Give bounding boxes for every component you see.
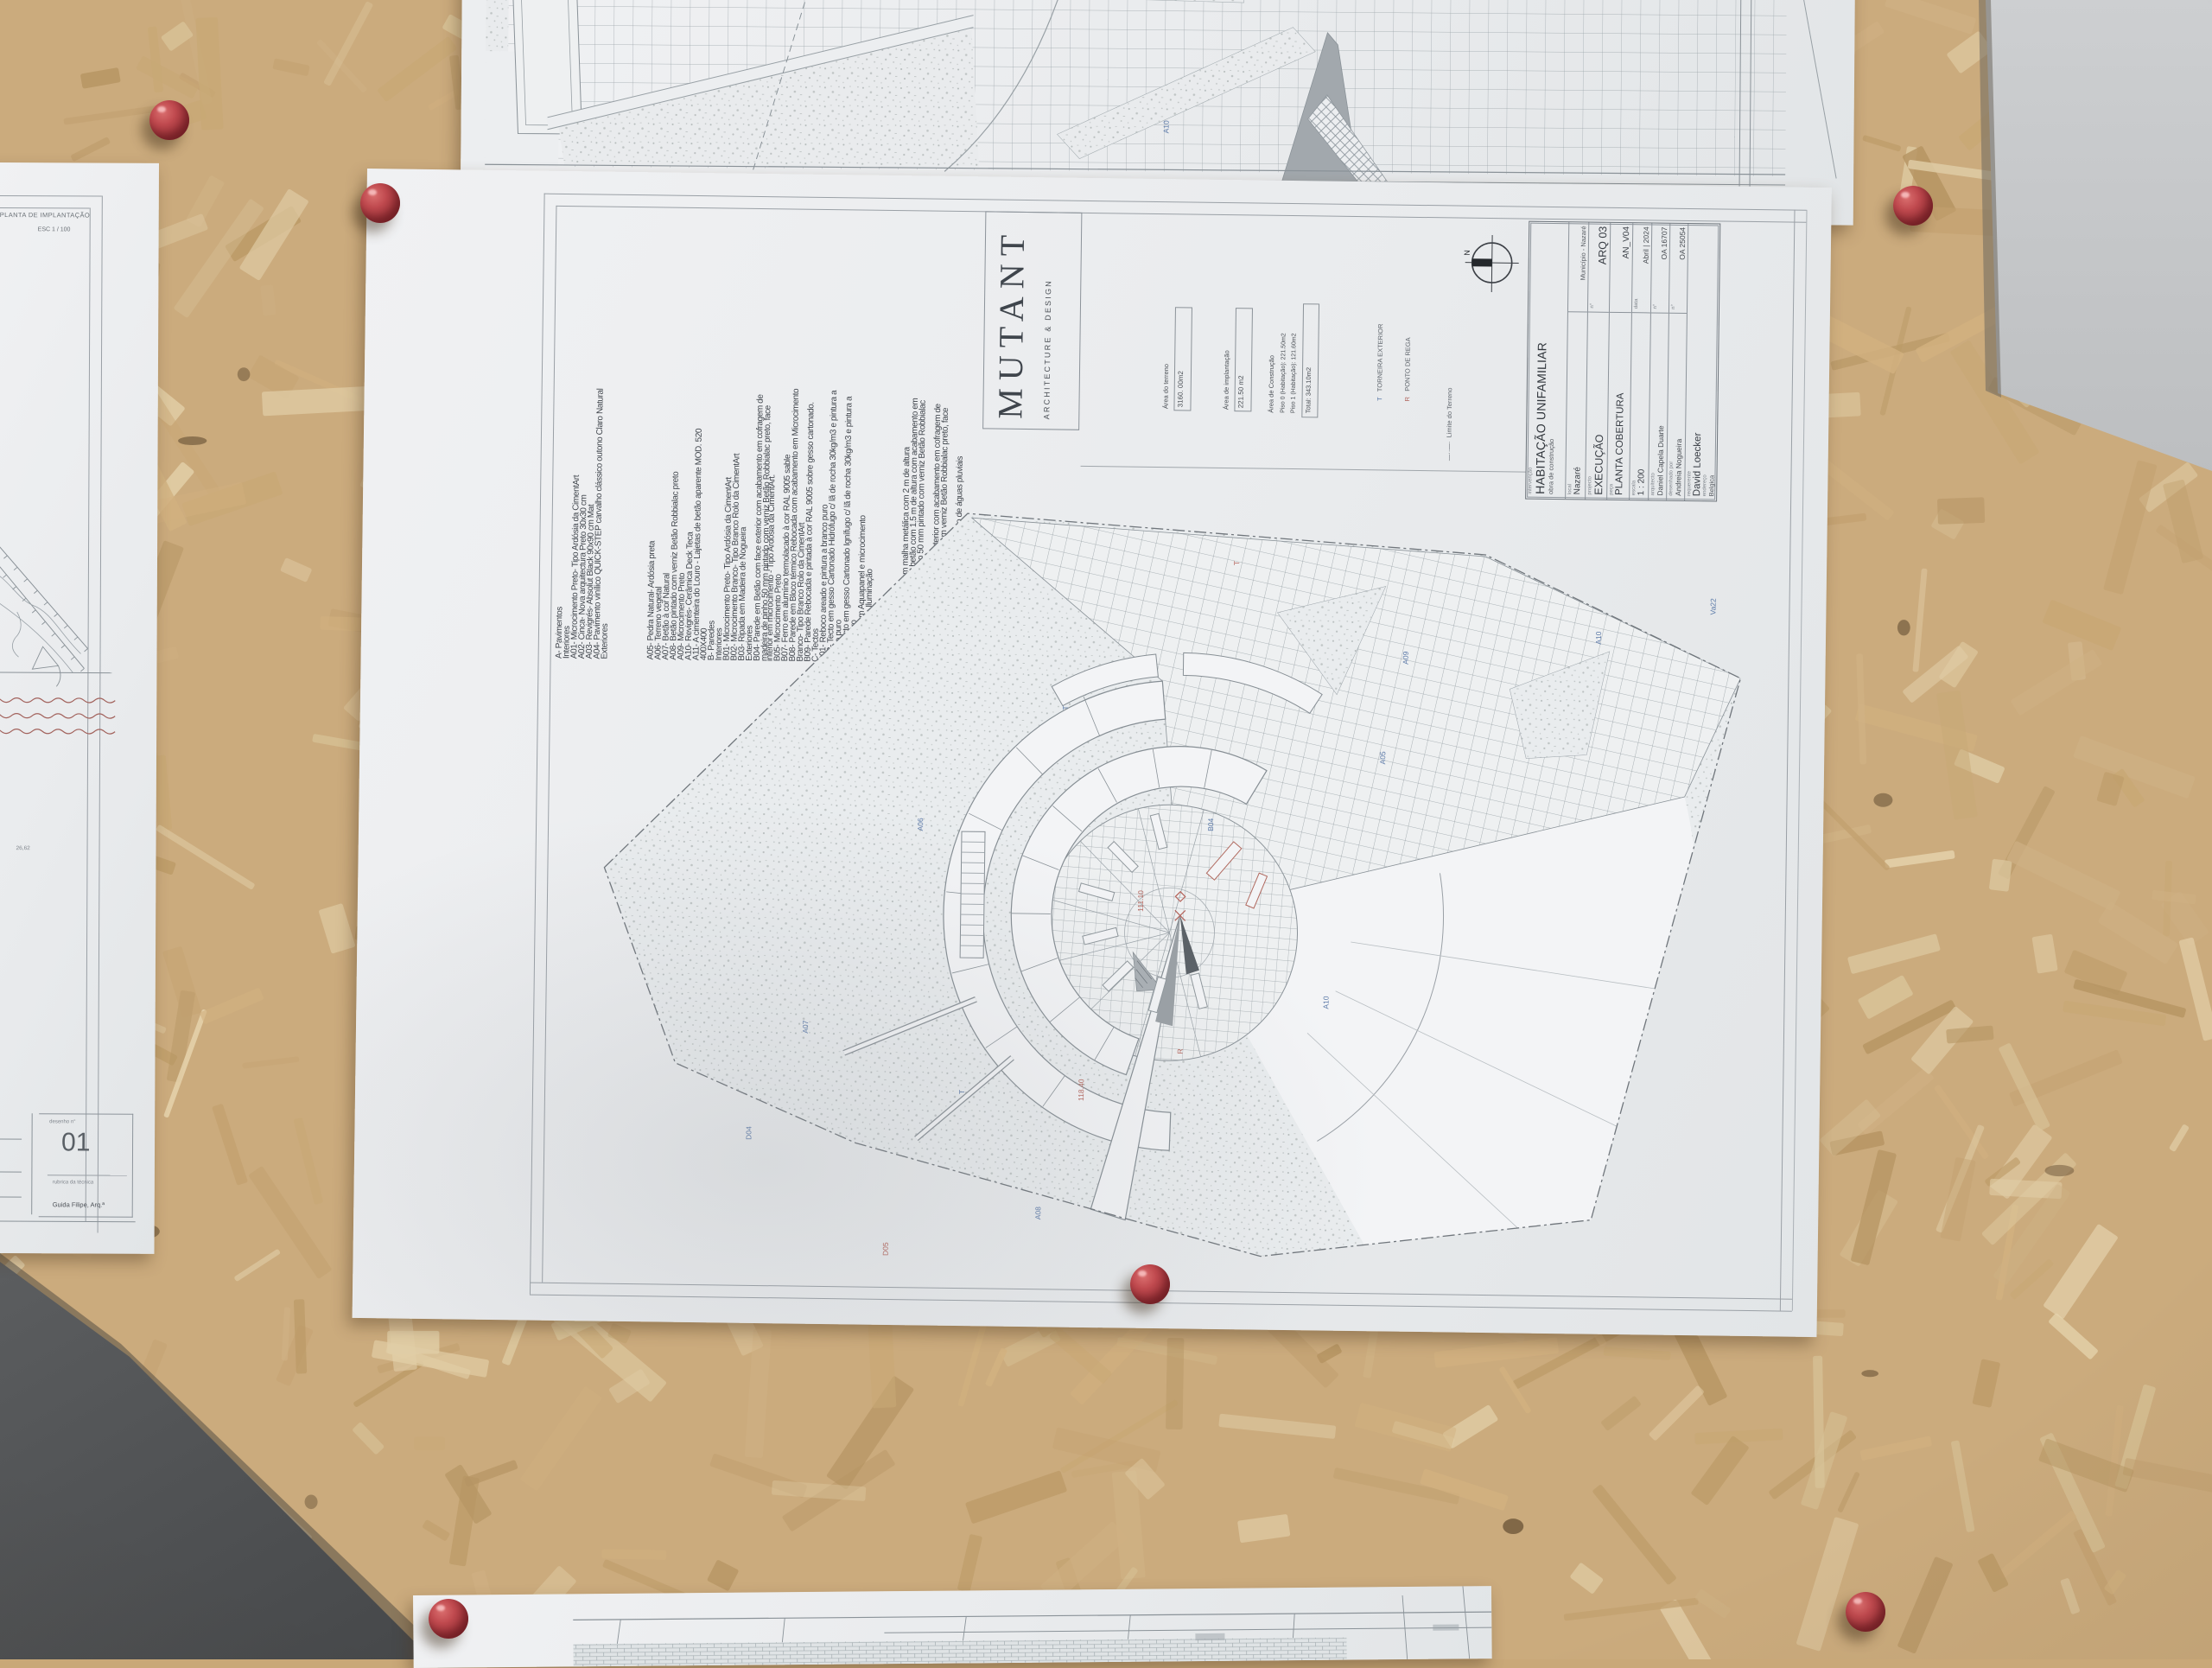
plan-label-Va22: Va22 (1709, 563, 1717, 614)
push-pin (1846, 1592, 1885, 1632)
plan-label-A10: A10 (1595, 593, 1603, 645)
push-pin (429, 1599, 468, 1639)
main-sheet: A- Pavimentos Interiores A01- Microcimen… (353, 169, 1832, 1337)
push-pin (360, 183, 400, 223)
drawing-number-label: desenho n° (49, 1119, 75, 1124)
plan-label-T: T (1062, 659, 1070, 710)
plan-label-T: T (1233, 513, 1241, 565)
plan-label-D04: D04 (745, 1088, 753, 1140)
plan-label-111.10: 111.10 (1137, 860, 1145, 912)
plan-label-A06: A06 (917, 779, 925, 831)
bottom-sheet-fragment (413, 1586, 1492, 1668)
signature-label: rubrica da técnica (53, 1180, 93, 1185)
plan-label-A09: A09 (1402, 613, 1410, 665)
bottom-sheet-drawing (413, 1586, 1492, 1668)
plan-label-118.40: 118.40 (1077, 1049, 1085, 1101)
plan-label-A05: A05 (1379, 712, 1387, 764)
implantation-titleblock: desenho n° 01 rubrica da técnica Guida F… (39, 1113, 134, 1217)
plan-label-A08: A08 (1034, 1168, 1042, 1219)
plan-label-T: T (958, 1042, 966, 1094)
push-pin (149, 100, 189, 140)
implantation-sheet: PLANTA DE IMPLANTAÇÃO ESC 1 / 100 26,62 … (0, 162, 159, 1254)
plan-label-A10: A10 (1322, 958, 1330, 1009)
push-pin (1130, 1264, 1170, 1304)
drawing-number: 01 (61, 1128, 91, 1157)
plan-label-B04: B04 (1207, 780, 1215, 831)
implantation-drawing (0, 162, 159, 1254)
plan-label-R: R (1177, 1002, 1185, 1054)
plan-labels: A05A10A09A10Va22A06A07B04A08D04D05TTTR11… (353, 169, 1832, 1337)
top-sheet-material-label: A10 (1163, 99, 1171, 133)
plan-label-D05: D05 (882, 1204, 890, 1256)
architect-signature: Guida Filipe, Arq.ª (53, 1200, 105, 1208)
push-pin (1893, 186, 1933, 226)
spot-elevation: 26,62 (16, 845, 30, 851)
plan-label-A07: A07 (802, 982, 810, 1034)
photo-of-pinboard: { "scene": {"surface": "osb-pinboard", "… (0, 0, 2212, 1659)
